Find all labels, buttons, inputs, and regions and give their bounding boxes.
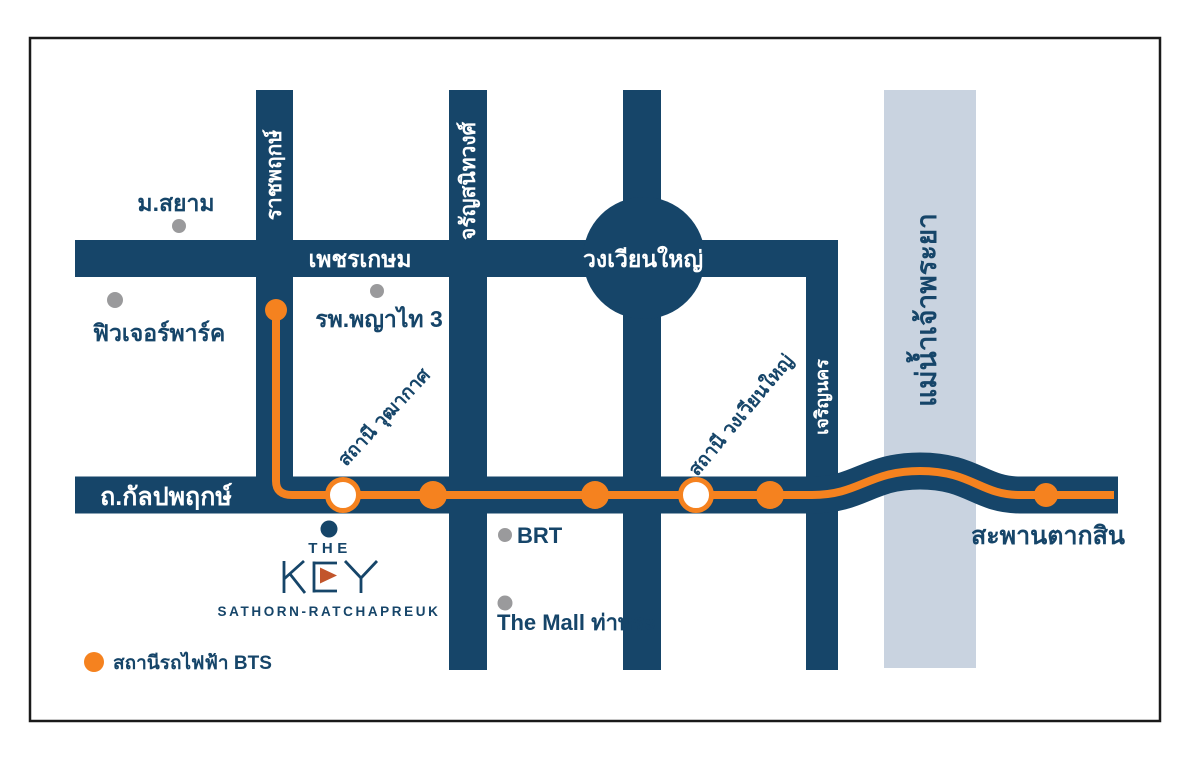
road-label-charoen-nakhon: เจริญนคร [812, 359, 833, 435]
road-wongwianyai-axis [623, 90, 661, 670]
station-label-wongwianyai: สถานี วงเวียนใหญ่ [683, 350, 798, 481]
road-charoen-nakhon [806, 240, 838, 670]
legend: สถานีรถไฟฟ้า BTS [84, 651, 272, 674]
project-location-dot [321, 521, 338, 538]
roundabout-label-wongwianyai: วงเวียนใหญ่ [583, 245, 703, 273]
legend-bts-label: สถานีรถไฟฟ้า BTS [113, 651, 272, 674]
station-marker-wutthakat [328, 480, 359, 511]
landmark-label-siam-university: ม.สยาม [137, 190, 214, 216]
map-canvas: แม่น้ำเจ้าพระยา เพชรเกษม วงเวียนใหญ่ ถ.ก… [0, 0, 1188, 763]
landmark-label-phyathai3: รพ.พญาไท 3 [315, 305, 443, 333]
road-label-phetkasem: เพชรเกษม [308, 246, 411, 272]
landmark-dot-siam-university [172, 219, 186, 233]
project-location-map: แม่น้ำเจ้าพระยา เพชรเกษม วงเวียนใหญ่ ถ.ก… [0, 0, 1188, 763]
bridge-label-taksin: สะพานตากสิน [971, 522, 1125, 550]
landmark-label-the-mall: The Mall ท่าพระ [497, 610, 656, 635]
logo-letter-y [345, 561, 377, 593]
landmark-label-future-park: ฟิวเจอร์พาร์ค [92, 320, 225, 346]
logo-letter-k [284, 561, 305, 593]
landmark-dot-brt [498, 528, 512, 542]
station-dot-2 [581, 481, 609, 509]
the-key-logo: THE SATHORN-RATCHAPREUK [218, 521, 441, 620]
road-label-kalpapruek: ถ.กัลปพฤกษ์ [100, 482, 232, 511]
bts-line-start-dot [265, 299, 287, 321]
station-marker-wongwianyai [681, 480, 712, 511]
station-dot-1 [419, 481, 447, 509]
road-label-ratchaphruek: ราชพฤกษ์ [262, 129, 286, 220]
landmark-dot-future-park [107, 292, 123, 308]
road-label-charansanitwong: จรัญสนิทวงศ์ [456, 121, 481, 240]
logo-the: THE [308, 540, 352, 557]
station-dot-3 [756, 481, 784, 509]
legend-bts-station-icon [84, 652, 104, 672]
river-label: แม่น้ำเจ้าพระยา [905, 213, 942, 407]
landmark-dot-phyathai3 [370, 284, 384, 298]
station-label-wutthakat: สถานี วุฒากาศ [334, 363, 437, 471]
station-dot-taksin [1034, 483, 1058, 507]
landmark-label-brt: BRT [517, 523, 563, 548]
logo-key-triangle-icon [320, 568, 337, 584]
landmark-dot-the-mall [498, 596, 513, 611]
logo-subtitle: SATHORN-RATCHAPREUK [218, 604, 441, 619]
